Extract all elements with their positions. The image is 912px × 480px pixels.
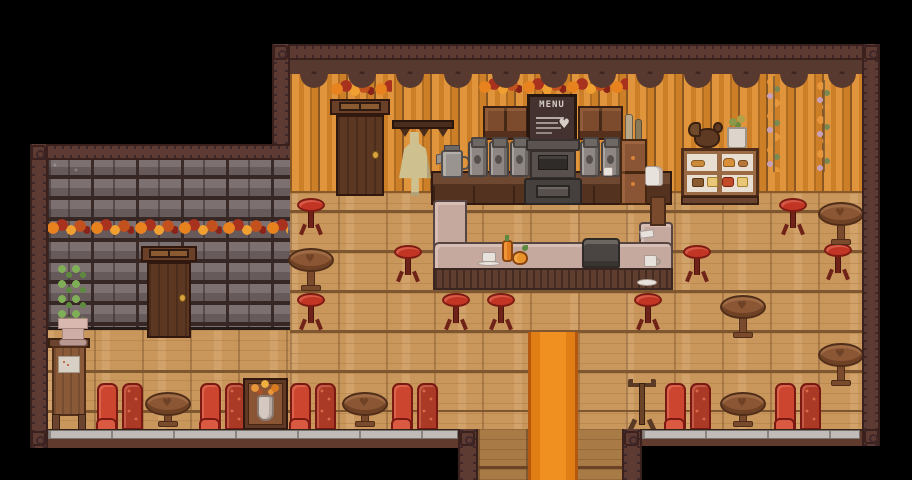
booth-seats[interactable]: [200, 383, 246, 431]
frame-knot: [31, 145, 46, 160]
stool-seat: [487, 293, 515, 307]
table-base: [733, 332, 753, 338]
baseboard: [48, 430, 458, 439]
table-base: [831, 380, 851, 386]
table-base: [355, 421, 375, 427]
bar-stool[interactable]: [486, 293, 516, 329]
saucer: [478, 261, 500, 266]
booth-seat: [417, 383, 438, 430]
bar-stool[interactable]: [296, 293, 326, 329]
baseboard: [642, 430, 860, 439]
stool-foot: [315, 224, 323, 236]
pillar-knot: [460, 431, 475, 446]
booth-seat: [775, 383, 796, 430]
table-top: [818, 202, 864, 226]
entrance-rug: [528, 332, 578, 480]
stool-foot: [299, 224, 307, 236]
booth-seat: [122, 383, 143, 430]
stool-seat: [394, 245, 422, 259]
stool-foot: [685, 271, 693, 283]
booth-seat: [290, 383, 311, 430]
stool-foot: [701, 271, 709, 283]
plate: [637, 279, 657, 286]
stool-leg: [694, 258, 700, 275]
scalloped-valance: [290, 58, 862, 74]
vase: [257, 395, 274, 421]
top-frame-bar: [272, 44, 880, 60]
pillar-knot: [624, 431, 639, 446]
table-top: [342, 392, 388, 416]
booth-seats[interactable]: [665, 383, 711, 431]
booth-seat: [665, 383, 686, 430]
coat-rack[interactable]: [626, 379, 658, 431]
stool-foot: [505, 319, 513, 331]
table-base: [831, 239, 851, 245]
table-top: [720, 295, 766, 319]
table-top: [818, 343, 864, 367]
pumpkin-stem: [505, 235, 509, 241]
stool-leg: [453, 306, 459, 323]
table-leg: [307, 270, 315, 286]
table-top: [720, 392, 766, 416]
bar-stool[interactable]: [441, 293, 471, 329]
pitcher: [645, 166, 663, 186]
table-leg: [837, 224, 845, 240]
frame-knot: [864, 45, 879, 60]
bar-stool[interactable]: [823, 243, 853, 279]
table-top: [145, 392, 191, 416]
stool-foot: [412, 271, 420, 283]
bar-stool[interactable]: [778, 198, 808, 234]
bar-stool[interactable]: [633, 293, 663, 329]
stool-leg: [308, 306, 314, 323]
game-scene: MENU ♥: [0, 0, 912, 480]
bar-stool[interactable]: [682, 245, 712, 281]
stool-foot: [636, 319, 644, 331]
frame-knot: [273, 45, 288, 60]
frame-knot: [864, 429, 879, 444]
stool-leg: [405, 258, 411, 275]
left-section-top-bar: [30, 144, 290, 160]
stool-foot: [460, 319, 468, 331]
rack-hook: [628, 379, 633, 387]
stool-foot: [396, 271, 404, 283]
rack-pole: [639, 383, 645, 425]
left-frame-column: [30, 144, 48, 448]
booth-seat: [800, 383, 821, 430]
stool-foot: [826, 269, 834, 281]
booth-seats[interactable]: [97, 383, 143, 431]
stool-foot: [299, 319, 307, 331]
stool-leg: [308, 211, 314, 228]
bar-stool[interactable]: [393, 245, 423, 281]
stool-seat: [779, 198, 807, 212]
stool-foot: [489, 319, 497, 331]
booth-seats[interactable]: [775, 383, 821, 431]
stool-leg: [498, 306, 504, 323]
stool-seat: [824, 243, 852, 257]
stool-foot: [315, 319, 323, 331]
right-frame-column: [862, 44, 880, 446]
stool-foot: [797, 224, 805, 236]
booth-seats[interactable]: [392, 383, 438, 431]
bar-stool[interactable]: [296, 198, 326, 234]
booth-seat: [690, 383, 711, 430]
table-leg: [739, 317, 747, 333]
stool-foot: [842, 269, 850, 281]
table-base: [301, 285, 321, 291]
table-base: [733, 421, 753, 427]
pumpkin-round: [512, 251, 528, 265]
booth-seat: [315, 383, 336, 430]
flower-display-case[interactable]: [243, 378, 288, 430]
stool-seat: [297, 198, 325, 212]
stool-leg: [790, 211, 796, 228]
stool-seat: [442, 293, 470, 307]
table-top: [288, 248, 334, 272]
stool-foot: [652, 319, 660, 331]
stool-seat: [634, 293, 662, 307]
stool-leg: [835, 256, 841, 273]
upper-left-frame-column: [272, 44, 290, 160]
stool-seat: [683, 245, 711, 259]
booth-seat: [97, 383, 118, 430]
rack-hook: [651, 379, 656, 387]
stool-foot: [781, 224, 789, 236]
booth-seats[interactable]: [290, 383, 336, 431]
booth-seat: [392, 383, 413, 430]
booth-seat: [200, 383, 221, 430]
stool-leg: [645, 306, 651, 323]
stool-seat: [297, 293, 325, 307]
pumpkin-leaf: [522, 245, 528, 251]
cash-register[interactable]: [582, 238, 620, 268]
frame-knot: [31, 431, 46, 446]
table-leg: [837, 365, 845, 381]
stool-foot: [444, 319, 452, 331]
table-base: [158, 421, 178, 427]
small-mug: [603, 167, 613, 176]
